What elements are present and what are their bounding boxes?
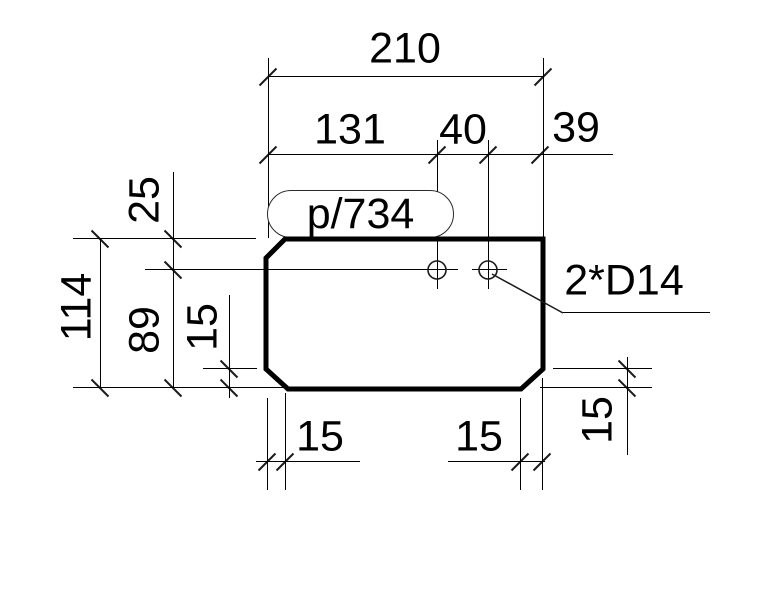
part-outline: [266, 239, 543, 389]
technical-drawing: p/734 210 131 40 39 25 114 89 15 15 15 1…: [0, 0, 766, 606]
hole-left: [428, 261, 446, 279]
part-outline-layer: [0, 0, 766, 606]
hole-right: [479, 261, 497, 279]
holes-leader-line: [492, 274, 563, 313]
